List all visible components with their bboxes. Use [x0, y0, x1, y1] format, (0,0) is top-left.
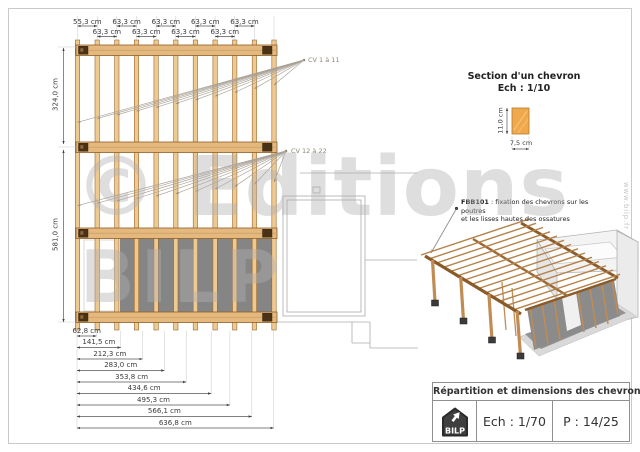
plan-sheet-page: 55,3 cm 63,3 cm 63,3 cm 63,3 cm 63,3 cm … — [0, 0, 640, 452]
left-dim-label: 324,0 cm — [51, 65, 60, 125]
cascade-dim-label: 283,0 cm — [98, 361, 144, 370]
top-dim-label: 63,3 cm — [223, 18, 267, 27]
left-dim-label: 581,0 cm — [51, 205, 60, 265]
top-dim-label: 63,3 cm — [85, 28, 129, 37]
callout-cv-12-22: CV 12 à 22 — [291, 147, 327, 155]
cascade-dim-label: 495,3 cm — [131, 396, 177, 405]
top-dim-label: 63,3 cm — [124, 28, 168, 37]
title-block: Répartition et dimensions des chevrons B… — [432, 382, 630, 442]
drawing-title: Répartition et dimensions des chevrons — [433, 383, 629, 401]
ossature-infill-panel — [84, 239, 274, 313]
top-dim-label: 63,3 cm — [105, 18, 149, 27]
top-dim-label: 63,3 cm — [144, 18, 188, 27]
cascade-dim-label: 212,3 cm — [87, 350, 133, 359]
bilp-logo-text: BILP — [444, 426, 464, 435]
cascade-dim-label: 353,8 cm — [109, 373, 155, 382]
bilp-logo: BILP — [433, 401, 477, 442]
callout-leader-fan-top — [78, 59, 306, 123]
page-number-cell: P : 14/25 — [553, 401, 629, 442]
top-dim-label: 63,3 cm — [203, 28, 247, 37]
pergola-3d-view — [421, 219, 638, 359]
website-vertical-text: www.bilp.fr — [622, 182, 630, 230]
cascade-dim-label: 141,5 cm — [76, 338, 122, 347]
callout-cv-1-11: CV 1 à 11 — [308, 56, 340, 64]
cascade-dim-label: 434,6 cm — [121, 384, 167, 393]
note-code: FBB101 — [461, 198, 489, 206]
top-dim-label: 63,3 cm — [183, 18, 227, 27]
fbb101-leader-line — [431, 207, 458, 253]
section-height-dim: 11,0 cm — [497, 98, 506, 142]
section-title: Section d'un chevron — [450, 71, 598, 82]
top-dim-label: 55,3 cm — [65, 18, 109, 27]
cascade-dim-label: 566,1 cm — [141, 407, 187, 416]
bilp-logo-icon: BILP — [442, 407, 468, 437]
note-line2: et les lisses hautes des ossatures — [461, 215, 613, 224]
section-width-dim: 7,5 cm — [499, 139, 543, 148]
scale-cell: Ech : 1/70 — [477, 401, 553, 442]
fixation-note: FBB101 : fixation des chevrons sur les p… — [461, 198, 613, 224]
cascade-dim-label: 636,8 cm — [152, 419, 198, 428]
top-dim-label: 63,3 cm — [164, 28, 208, 37]
cascade-dim-label: 62,8 cm — [64, 327, 110, 336]
existing-building-plan-outline — [277, 173, 418, 348]
section-scale: Ech : 1/10 — [450, 83, 598, 94]
